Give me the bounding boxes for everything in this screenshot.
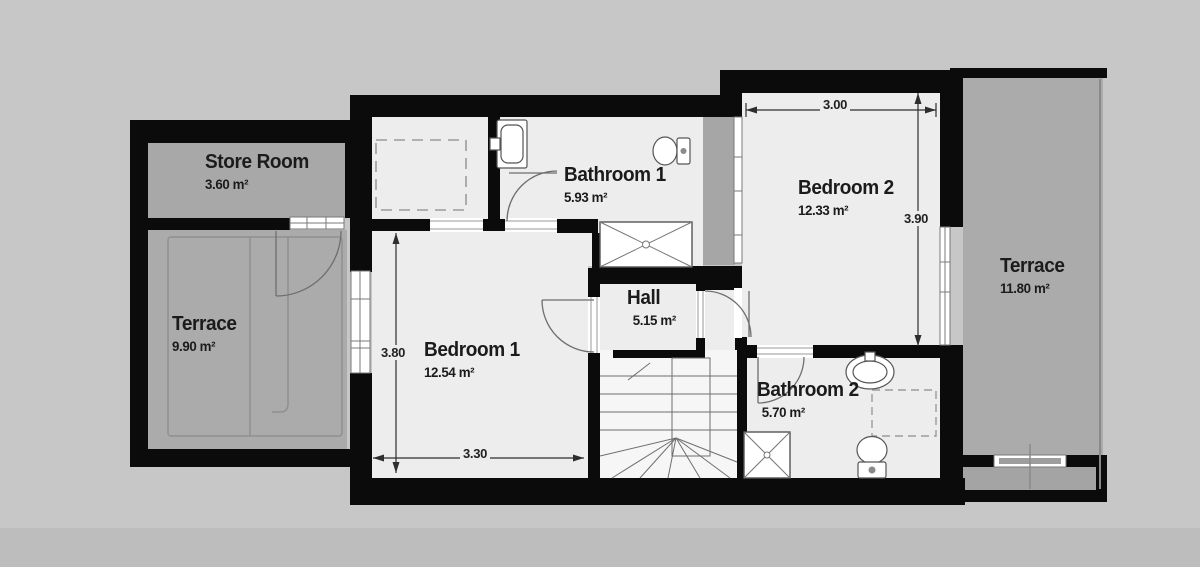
room-name: Hall bbox=[627, 288, 676, 309]
threshold-hall bbox=[696, 291, 705, 338]
room-label-store-room: Store Room 3.60 m² bbox=[205, 152, 309, 192]
toilet-icon bbox=[653, 137, 690, 165]
shower-icon bbox=[600, 222, 692, 267]
wardrobe-dashed-outline bbox=[376, 140, 466, 210]
room-area: 5.93 m² bbox=[564, 189, 666, 205]
threshold-bedroom-1 bbox=[588, 297, 600, 353]
floor-plan: Store Room 3.60 m² Terrace 9.90 m² Bedro… bbox=[0, 0, 1200, 567]
opening-nook bbox=[430, 218, 483, 232]
room-label-bathroom-1: Bathroom 1 5.93 m² bbox=[564, 165, 666, 205]
room-label-bedroom-2: Bedroom 2 12.33 m² bbox=[798, 178, 894, 218]
room-area: 5.70 m² bbox=[762, 404, 859, 420]
door-swing-bedroom-1 bbox=[542, 300, 594, 352]
window-bedroom-1 bbox=[351, 271, 370, 373]
room-name: Bedroom 2 bbox=[798, 178, 894, 199]
room-label-terrace-left: Terrace 9.90 m² bbox=[172, 314, 237, 354]
room-area: 3.60 m² bbox=[205, 176, 309, 192]
threshold-bathroom-2 bbox=[757, 345, 813, 358]
opening-bedroom-2 bbox=[734, 288, 742, 338]
room-label-hall: Hall 5.15 m² bbox=[627, 288, 676, 328]
dimension-bedroom2-height: 3.90 bbox=[901, 211, 931, 226]
window-store-room bbox=[290, 217, 344, 229]
door-swing-bathroom-1 bbox=[507, 171, 557, 221]
door-swing-terrace bbox=[276, 231, 341, 296]
room-name: Terrace bbox=[172, 314, 237, 335]
dimension-bedroom1-width: 3.30 bbox=[460, 446, 490, 461]
room-area: 9.90 m² bbox=[172, 338, 237, 354]
room-area: 12.54 m² bbox=[424, 364, 520, 380]
window-shaft bbox=[734, 117, 742, 263]
window-bedroom-2 bbox=[940, 227, 950, 345]
window-terrace-right bbox=[994, 444, 1066, 489]
room-name: Bathroom 1 bbox=[564, 165, 666, 186]
room-area: 5.15 m² bbox=[633, 312, 676, 328]
room-name: Bedroom 1 bbox=[424, 340, 520, 361]
room-area: 11.80 m² bbox=[1000, 280, 1065, 296]
toilet-icon bbox=[857, 437, 887, 479]
appliance-space-dashed bbox=[872, 390, 936, 436]
staircase-icon bbox=[600, 358, 737, 478]
room-name: Store Room bbox=[205, 152, 309, 173]
room-name: Bathroom 2 bbox=[757, 380, 859, 401]
room-label-terrace-right: Terrace 11.80 m² bbox=[1000, 256, 1065, 296]
sink-icon bbox=[490, 120, 527, 168]
room-name: Terrace bbox=[1000, 256, 1065, 277]
room-label-bedroom-1: Bedroom 1 12.54 m² bbox=[424, 340, 520, 380]
room-label-bathroom-2: Bathroom 2 5.70 m² bbox=[757, 380, 859, 420]
room-area: 12.33 m² bbox=[798, 202, 894, 218]
dimension-bedroom1-height: 3.80 bbox=[378, 345, 408, 360]
dimension-bedroom2-width: 3.00 bbox=[820, 97, 850, 112]
door-swing-bedroom-2 bbox=[705, 291, 751, 337]
threshold-bathroom-1 bbox=[505, 218, 557, 232]
shower-icon bbox=[744, 432, 790, 478]
